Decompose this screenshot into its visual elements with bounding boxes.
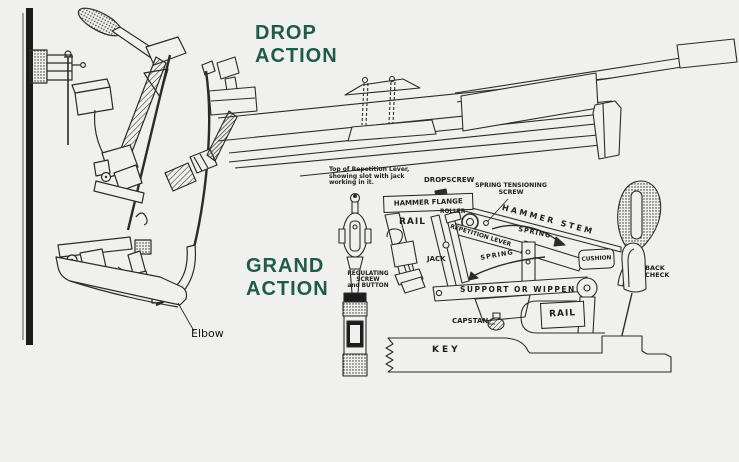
- label-dropscrew: DROPSCREW: [424, 177, 474, 184]
- whippen-assembly: [56, 213, 187, 307]
- label-rail-lower: RAIL: [540, 301, 585, 329]
- drop-action-heading: DROP ACTION: [255, 22, 338, 68]
- note-line3: working in it.: [329, 180, 409, 187]
- flange-bracket: [30, 50, 85, 83]
- label-back-check: BACK CHECK: [645, 265, 669, 279]
- repetition-lever-note: Top of Repetition Lever, showing slot wi…: [329, 167, 409, 187]
- label-support-or-wippen: SUPPORT OR WIPPEN: [460, 286, 576, 294]
- label-key: KEY: [432, 346, 461, 355]
- grand-heading-line1: GRAND: [246, 255, 329, 278]
- back-check-part: [619, 243, 646, 348]
- label-elbow: Elbow: [191, 328, 224, 340]
- regulating-line3: and BUTTON: [342, 283, 394, 289]
- label-spring-tensioning-screw: SPRING TENSIONING SCREW: [468, 183, 554, 196]
- key-end-support: [593, 101, 621, 159]
- label-rail-upper: RAIL: [399, 218, 426, 227]
- key-part: [386, 336, 671, 372]
- grand-heading-line2: ACTION: [246, 278, 329, 301]
- label-regulating-screw: REGULATING SCREW and BUTTON: [342, 271, 394, 289]
- label-roller: ROLLER: [440, 209, 465, 215]
- label-cushion: CUSHION: [578, 248, 615, 270]
- back-check-line2: CHECK: [645, 272, 669, 279]
- scanned-diagram-page: DROP ACTION GRAND ACTION Top of Repetiti…: [0, 0, 739, 462]
- key-front-fitting: [209, 57, 257, 115]
- hammer-butt-cluster: [94, 145, 144, 203]
- connecting-strap: [207, 111, 237, 161]
- drop-hammer: [75, 3, 186, 157]
- label-capstan: CAPSTAN: [452, 318, 488, 325]
- grand-action-heading: GRAND ACTION: [246, 255, 329, 301]
- balance-pins: [345, 77, 436, 142]
- action-bracket: [72, 79, 113, 157]
- drop-heading-line1: DROP: [255, 22, 338, 45]
- label-jack: JACK: [427, 256, 446, 263]
- drop-heading-line2: ACTION: [255, 45, 338, 68]
